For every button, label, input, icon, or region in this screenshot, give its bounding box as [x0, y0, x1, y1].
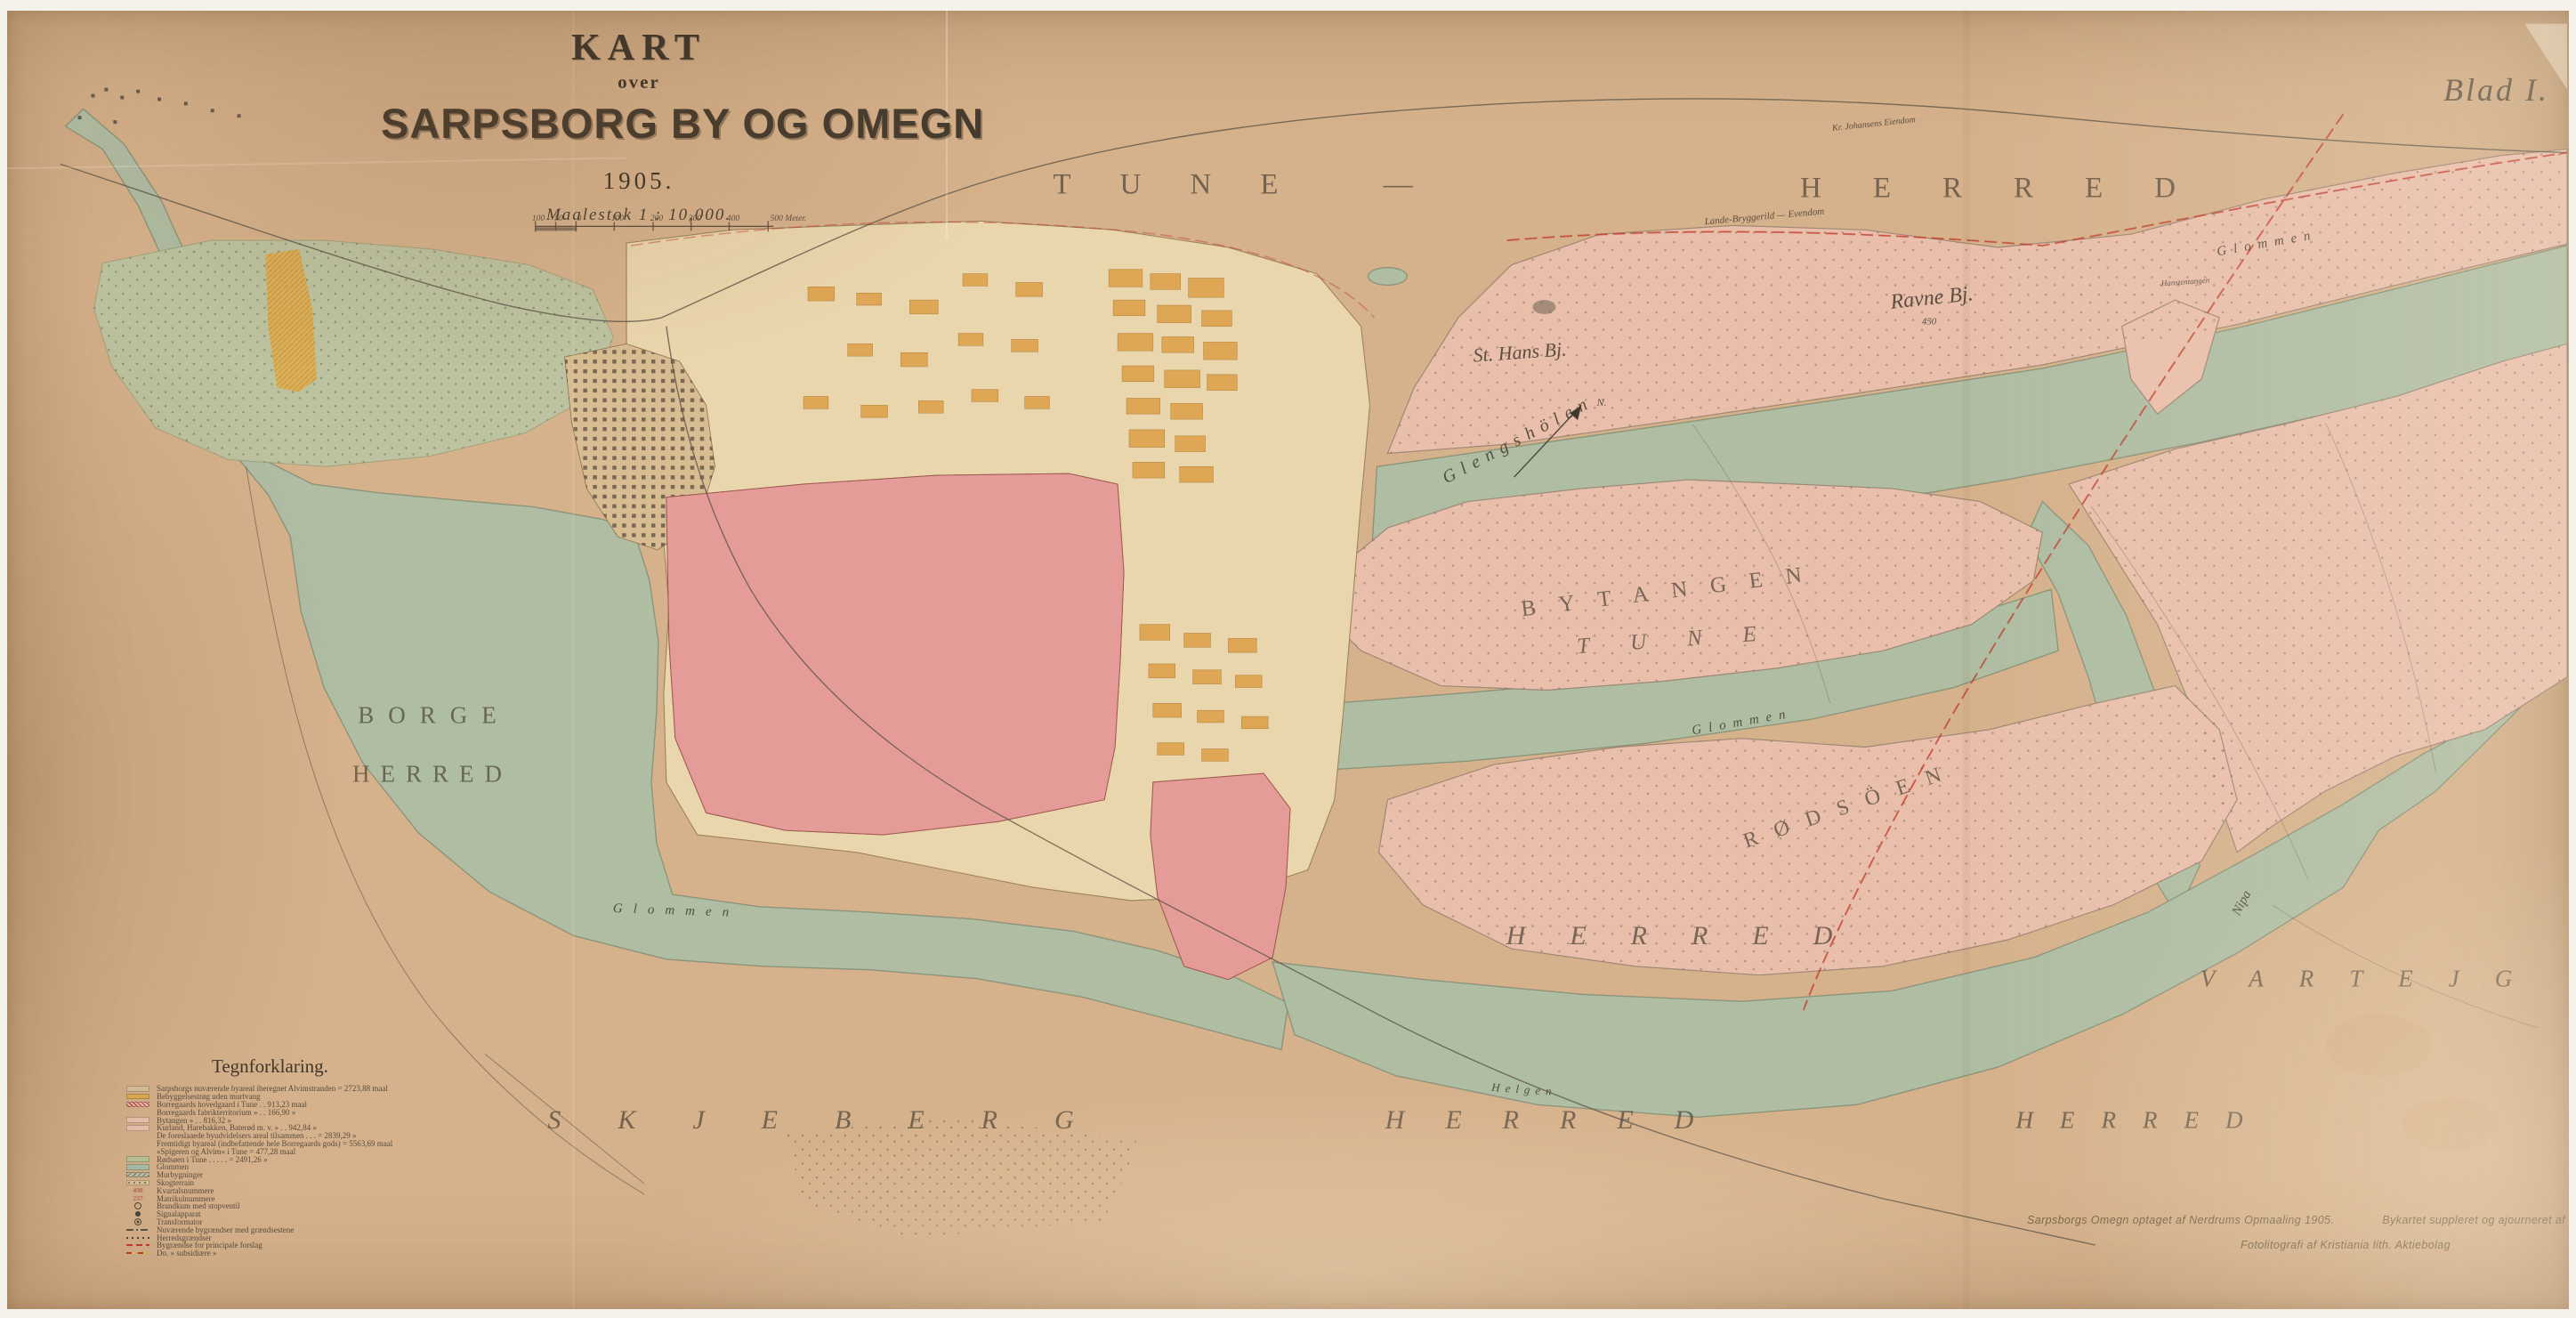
map-title-over: over	[381, 71, 897, 93]
legend-swatch: 237	[126, 1195, 149, 1201]
legend-swatch	[126, 1252, 149, 1254]
map-label: Hanstentangen	[2161, 277, 2210, 288]
legend-swatch	[126, 1102, 149, 1108]
credits-supplement: Bykartet suppleret og ajourneret af Stad…	[2382, 1214, 2569, 1226]
credits-survey: Sarpsborgs Omegn optaget af Nerdrums Opm…	[2027, 1214, 2334, 1226]
map-sheet: KART over SARPSBORG BY OG OMEGN 1905. Ma…	[7, 11, 2569, 1309]
map-label: HERRED	[2016, 1109, 2270, 1133]
legend-row: Do. » subsidiære »	[126, 1249, 500, 1257]
map-scale-text: Maalestok 1 : 10,000.	[381, 206, 897, 225]
legend-swatch	[126, 1180, 149, 1186]
credits: Sarpsborgs Omegn optaget af Nerdrums Opm…	[2027, 1214, 2569, 1251]
credits-line-1: Sarpsborgs Omegn optaget af Nerdrums Opm…	[2027, 1214, 2569, 1226]
map-label: 450	[1922, 318, 1937, 327]
legend-swatch	[126, 1156, 149, 1162]
legend-swatch	[126, 1172, 149, 1178]
legend-swatch	[126, 1244, 149, 1246]
map-label: Glengshölen	[1440, 392, 1596, 487]
legend-title: Tegnforklaring.	[212, 1055, 500, 1078]
scale-tick-label: 100	[611, 214, 624, 223]
legend-swatch	[126, 1086, 149, 1092]
scale-tick-label: 50	[554, 214, 563, 223]
map-label: Kr. Johansens Eiendom	[1832, 116, 1917, 133]
legend-swatch	[126, 1164, 149, 1170]
map-label: HERRED	[352, 763, 513, 787]
map-label: RØDSÖEN	[1740, 758, 1960, 852]
map-label: N.	[1596, 397, 1606, 408]
scale-tick-label: 400	[727, 214, 739, 223]
map-label: Helgen	[1491, 1081, 1557, 1097]
map-title-kart: KART	[381, 27, 897, 69]
map-label: HERRED	[1800, 174, 2227, 204]
scale-tick-label: 300	[689, 214, 701, 223]
legend-swatch	[126, 1125, 149, 1131]
map-label: Nipa	[2231, 889, 2255, 918]
legend-swatch	[126, 1094, 149, 1100]
scale-tick-label: 100	[532, 214, 545, 223]
map-label: TUNE	[1576, 620, 1797, 658]
map-label: Lande-Bryggerild — Evendom	[1704, 207, 1824, 228]
legend-swatch	[126, 1211, 149, 1217]
map-label: SKJEBERG	[547, 1107, 1130, 1134]
scale-tick-label: 500 Meter.	[771, 214, 807, 223]
legend-label: Do. » subsidiære »	[157, 1249, 217, 1257]
legend-swatch	[126, 1117, 149, 1123]
map-label: TUNE —	[1053, 171, 1461, 200]
map-label: BORGE	[358, 704, 511, 728]
map-label: Glommen	[2216, 229, 2318, 260]
map-label: BYTANGEN	[1520, 562, 1826, 621]
legend-swatch	[126, 1229, 149, 1231]
sheet-number: Blad I.	[2443, 71, 2549, 109]
legend-swatch	[126, 1237, 149, 1239]
legend-rows: Sarpsborgs nuværende byareal iberegnet A…	[126, 1085, 500, 1257]
scale-tick-label: 0	[577, 214, 582, 223]
legend-swatch	[126, 1203, 149, 1209]
map-label: Glommen	[613, 902, 740, 920]
legend-swatch: 498	[126, 1188, 149, 1194]
map-label: HERRED	[1506, 923, 1877, 950]
legend: Tegnforklaring. Sarpsborgs nuværende bya…	[126, 1055, 500, 1257]
map-label: VARTEJG	[2201, 967, 2548, 991]
map-label: Ravne Bj.	[1889, 283, 1974, 313]
legend-swatch	[126, 1219, 149, 1225]
map-label: St. Hans Bj.	[1473, 339, 1567, 365]
credits-line-2: Fotolitografi af Kristiania lith. Aktieb…	[2241, 1239, 2569, 1251]
map-title-main: SARPSBORG BY OG OMEGN	[381, 99, 897, 148]
scale-tick-label: 200	[650, 214, 663, 223]
map-label: HERRED	[1385, 1107, 1735, 1134]
map-title-year: 1905.	[381, 167, 897, 195]
map-label: Glommen	[1691, 708, 1793, 739]
map-title-block: KART over SARPSBORG BY OG OMEGN 1905. Ma…	[381, 27, 897, 225]
